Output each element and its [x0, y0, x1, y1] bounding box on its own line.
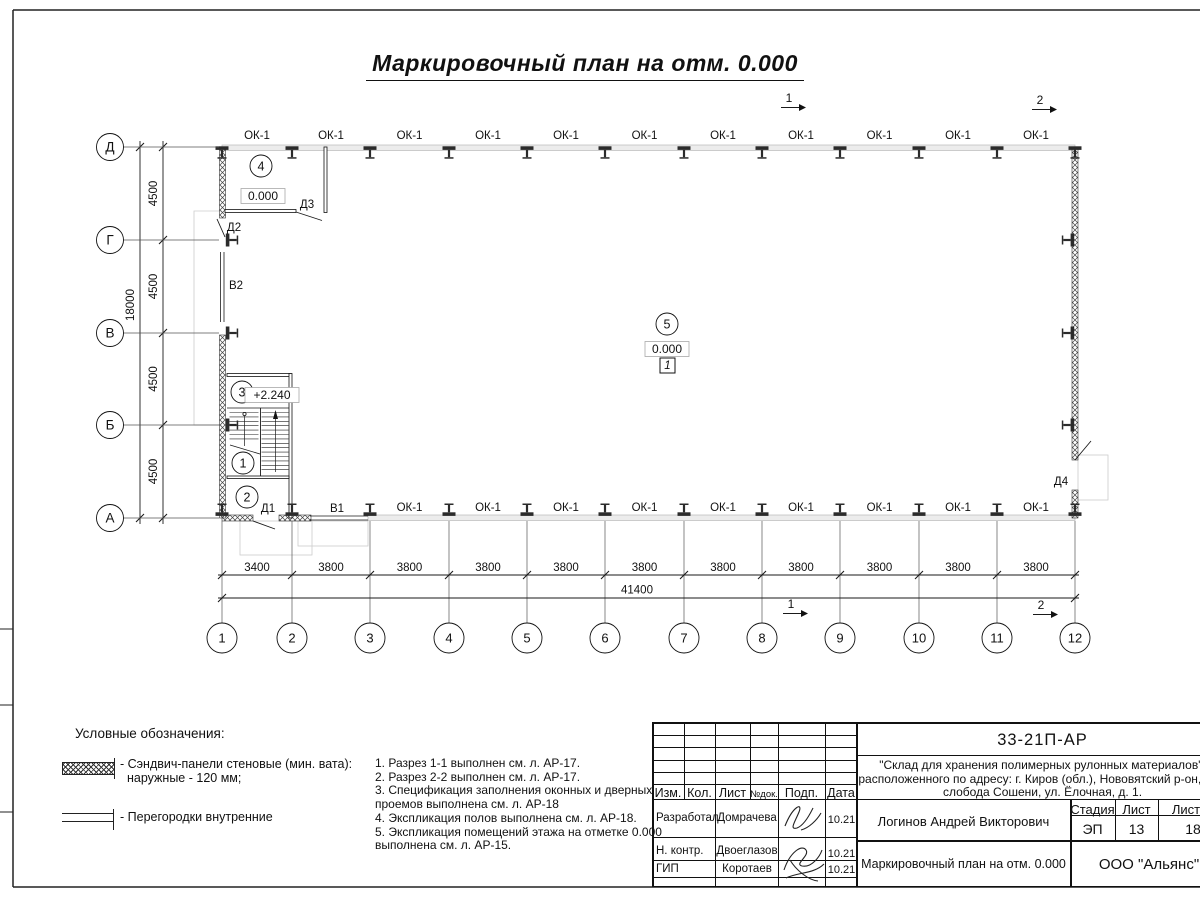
drawing-sheet: { "sheet_title": "Маркировочный план на …: [0, 0, 1200, 900]
column-symbol: [839, 505, 841, 512]
dim-label: 3800: [945, 562, 971, 574]
window-mark-label: ОК-1: [945, 502, 971, 514]
column-symbol: [1063, 239, 1070, 241]
legend-heading: Условные обозначения:: [75, 726, 225, 741]
column-symbol: [448, 150, 450, 157]
column-symbol: [756, 146, 769, 150]
drawing-main-title: Маркировочный план на отм. 0.000: [300, 50, 870, 77]
window-mark-label: ОК-1: [318, 130, 344, 142]
window-mark-label: ОК-1: [1023, 502, 1049, 514]
section-mark-arrow: [1051, 611, 1058, 618]
tb-col-header: №док.: [750, 789, 778, 800]
tb-doc-number: 33-21П-АР: [857, 731, 1200, 750]
notes-list: 1. Разрез 1-1 выполнен см. л. АР-17. 2. …: [375, 757, 671, 853]
elevation-value: 0.000: [248, 189, 278, 203]
tb-role: Н. контр.: [656, 845, 716, 857]
axis-number: 12: [1068, 631, 1082, 646]
note-item: 1. Разрез 1-1 выполнен см. л. АР-17.: [375, 757, 671, 771]
tb-role: ГИП: [656, 863, 716, 875]
column-symbol: [915, 157, 924, 159]
dim-label: 3800: [632, 562, 658, 574]
axis-letter: Д: [105, 140, 114, 155]
column-symbol: [1071, 157, 1080, 159]
column-symbol: [1074, 505, 1076, 512]
axis-number: 11: [990, 631, 1004, 646]
tb-project-desc: расположенного по адресу: г. Киров (обл.…: [857, 772, 1200, 786]
tb-date: 10.21: [826, 814, 857, 826]
column-symbol: [226, 327, 230, 340]
axis-number: 1: [218, 631, 225, 646]
legend-item-label: наружные - 120 мм;: [127, 771, 241, 785]
stair-arrow: [273, 410, 278, 419]
porch-outline: [298, 521, 368, 546]
column-symbol: [1062, 329, 1064, 338]
tb-approved-by: Логинов Андрей Викторович: [857, 814, 1070, 829]
dim-label: 3800: [867, 562, 893, 574]
door-mark-label: Д4: [1054, 476, 1069, 488]
signature: [779, 800, 825, 836]
window-mark-label: ОК-1: [1023, 130, 1049, 142]
section-mark-label: 1: [786, 91, 793, 105]
axis-number: 10: [912, 631, 926, 646]
column-symbol: [526, 505, 528, 512]
door-swing: [296, 212, 322, 221]
column-symbol: [237, 329, 239, 338]
column-symbol: [221, 150, 223, 157]
column-symbol: [1071, 419, 1075, 432]
legend-item-label: - Сэндвич-панели стеновые (мин. вата):: [120, 757, 352, 771]
window-band-top: [222, 145, 1075, 151]
window-mark-label: ОК-1: [632, 130, 658, 142]
axis-number: 4: [445, 631, 452, 646]
dim-label: 3800: [553, 562, 579, 574]
tb-stage-label: Стадия: [1070, 802, 1115, 817]
tb-project-desc: "Склад для хранения полимерных рулонных …: [857, 758, 1200, 772]
door-mark-label: В1: [330, 503, 344, 515]
column-symbol: [366, 504, 375, 506]
column-symbol: [599, 146, 612, 150]
room-number: 1: [240, 456, 247, 470]
dim-label: 3800: [1023, 562, 1049, 574]
tb-sheet-value: 13: [1115, 821, 1158, 837]
partition: [225, 210, 296, 213]
tb-name: Двоеглазов: [716, 845, 778, 857]
column-symbol: [291, 505, 293, 512]
column-symbol: [758, 157, 767, 159]
door-mark-label: Д3: [300, 199, 314, 211]
dim-label: 3400: [244, 562, 270, 574]
dim-label: 41400: [621, 585, 653, 597]
partition: [227, 374, 291, 377]
column-symbol: [996, 505, 998, 512]
column-symbol: [996, 150, 998, 157]
elevation-value: +2.240: [253, 388, 290, 402]
column-symbol: [237, 236, 239, 245]
legend-item-label: - Перегородки внутренние: [120, 810, 273, 824]
tb-col-header: Изм.: [652, 786, 684, 800]
column-symbol: [1063, 332, 1070, 334]
axis-letter: Г: [106, 233, 114, 248]
column-symbol: [369, 150, 371, 157]
door-swing: [217, 219, 225, 237]
column-symbol: [601, 157, 610, 159]
door-mark-label: Д2: [227, 222, 241, 234]
column-symbol: [756, 512, 769, 516]
column-symbol: [678, 146, 691, 150]
axis-letter: Б: [106, 418, 115, 433]
tb-sheet-label: Лист: [1115, 802, 1158, 817]
dim-label: 4500: [148, 366, 160, 392]
window-band-bottom: [368, 515, 1075, 521]
column-symbol: [836, 157, 845, 159]
tb-col-header: Кол.: [684, 786, 715, 800]
column-symbol: [364, 146, 377, 150]
axis-number: 3: [366, 631, 373, 646]
wall-hatch: [1072, 147, 1078, 460]
column-symbol: [683, 505, 685, 512]
column-symbol: [364, 512, 377, 516]
column-symbol: [1063, 424, 1070, 426]
column-symbol: [523, 157, 532, 159]
column-symbol: [286, 512, 299, 516]
window-mark-label: ОК-1: [710, 502, 736, 514]
column-symbol: [288, 157, 297, 159]
column-symbol: [604, 505, 606, 512]
column-symbol: [918, 505, 920, 512]
column-symbol: [216, 512, 229, 516]
column-symbol: [991, 146, 1004, 150]
note-item: 5. Экспликация помещений этажа на отметк…: [375, 826, 671, 853]
column-symbol: [758, 504, 767, 506]
column-symbol: [369, 505, 371, 512]
note-item: 4. Экспликация полов выполнена см. л. АР…: [375, 812, 671, 826]
column-symbol: [218, 504, 227, 506]
axis-number: 7: [680, 631, 687, 646]
column-symbol: [229, 332, 236, 334]
axis-number: 2: [288, 631, 295, 646]
column-symbol: [288, 504, 297, 506]
section-mark-label: 1: [788, 597, 795, 611]
tb-name: Коротаев: [716, 863, 778, 875]
column-symbol: [1062, 421, 1064, 430]
column-symbol: [993, 504, 1002, 506]
dim-label: 4500: [148, 274, 160, 300]
room-number: 4: [258, 159, 265, 173]
tb-col-header: Дата: [825, 786, 857, 800]
column-symbol: [521, 146, 534, 150]
column-symbol: [918, 150, 920, 157]
column-symbol: [678, 512, 691, 516]
section-mark-arrow: [1050, 106, 1057, 113]
column-symbol: [1074, 150, 1076, 157]
column-symbol: [839, 150, 841, 157]
partition: [227, 476, 289, 479]
dim-label: 3800: [788, 562, 814, 574]
door-swing: [253, 521, 275, 529]
column-symbol: [523, 504, 532, 506]
column-symbol: [291, 150, 293, 157]
sandwich-panel-symbol: [62, 762, 115, 775]
axis-number: 9: [836, 631, 843, 646]
wall-hatch: [220, 335, 226, 518]
column-symbol: [761, 505, 763, 512]
dim-label: 3800: [475, 562, 501, 574]
elevation-value: 0.000: [652, 342, 682, 356]
column-symbol: [1069, 512, 1082, 516]
window-mark-label: ОК-1: [867, 502, 893, 514]
window-mark-label: ОК-1: [397, 130, 423, 142]
column-symbol: [226, 419, 230, 432]
porch-outline: [1078, 455, 1108, 500]
column-symbol: [680, 504, 689, 506]
room-number: 3: [239, 385, 246, 399]
axis-number: 5: [523, 631, 530, 646]
floor-type-number: 1: [664, 360, 670, 372]
window-mark-label: ОК-1: [788, 130, 814, 142]
tb-name: Домрачева: [716, 812, 778, 824]
window-mark-label: ОК-1: [710, 130, 736, 142]
section-mark-label: 2: [1038, 598, 1045, 612]
tb-company: ООО "Альянс": [1070, 856, 1200, 873]
axis-letter: В: [105, 326, 114, 341]
column-symbol: [1071, 504, 1080, 506]
column-symbol: [226, 234, 230, 247]
axis-letter: А: [105, 511, 114, 526]
tb-date: 10.21: [826, 864, 857, 876]
column-symbol: [221, 505, 223, 512]
dim-label: 4500: [148, 459, 160, 485]
column-symbol: [445, 157, 454, 159]
tb-drawing-title: Маркировочный план на отм. 0.000: [857, 857, 1070, 871]
column-symbol: [445, 504, 454, 506]
column-symbol: [286, 146, 299, 150]
window-mark-label: ОК-1: [553, 502, 579, 514]
tb-project-desc: слобода Сошени, ул. Ёлочная, д. 1.: [857, 785, 1200, 799]
column-symbol: [683, 150, 685, 157]
note-item: 2. Разрез 2-2 выполнен см. л. АР-17.: [375, 771, 671, 785]
room-number: 2: [244, 490, 251, 504]
window-mark-label: ОК-1: [867, 130, 893, 142]
column-symbol: [834, 512, 847, 516]
column-symbol: [761, 150, 763, 157]
column-symbol: [680, 157, 689, 159]
column-symbol: [526, 150, 528, 157]
window-mark-label: ОК-1: [553, 130, 579, 142]
column-symbol: [604, 150, 606, 157]
wall-hatch: [279, 515, 311, 521]
tb-role: Разработал: [656, 812, 716, 824]
column-symbol: [237, 421, 239, 430]
column-symbol: [366, 157, 375, 159]
column-symbol: [1062, 236, 1064, 245]
column-symbol: [599, 512, 612, 516]
note-item: 3. Спецификация заполнения оконных и две…: [375, 784, 671, 811]
window-mark-label: ОК-1: [397, 502, 423, 514]
axis-number: 8: [758, 631, 765, 646]
column-symbol: [443, 512, 456, 516]
column-symbol: [913, 146, 926, 150]
dim-label: 4500: [148, 181, 160, 207]
column-symbol: [1071, 234, 1075, 247]
window-mark-label: ОК-1: [788, 502, 814, 514]
tb-col-header: Подп.: [778, 786, 825, 800]
window-mark-label: ОК-1: [945, 130, 971, 142]
section-mark-arrow: [799, 104, 806, 111]
column-symbol: [1069, 146, 1082, 150]
tb-sheets-value: 18: [1158, 821, 1200, 837]
column-symbol: [1071, 327, 1075, 340]
window-mark-label: ОК-1: [244, 130, 270, 142]
partition: [324, 147, 327, 213]
column-symbol: [913, 512, 926, 516]
porch-outline: [240, 521, 312, 555]
column-symbol: [521, 512, 534, 516]
door-mark-label: В2: [229, 280, 243, 292]
column-symbol: [448, 505, 450, 512]
interior-partition-symbol: [62, 813, 113, 822]
window-mark-label: ОК-1: [475, 130, 501, 142]
wall-hatch: [222, 515, 253, 521]
tb-col-header: Лист: [715, 786, 750, 800]
canopy-outline: [194, 211, 222, 425]
column-symbol: [834, 146, 847, 150]
dim-label: 3800: [397, 562, 423, 574]
column-symbol: [836, 504, 845, 506]
dim-label: 3800: [710, 562, 736, 574]
axis-number: 6: [601, 631, 608, 646]
section-mark-arrow: [801, 610, 808, 617]
window-mark-label: ОК-1: [475, 502, 501, 514]
column-symbol: [991, 512, 1004, 516]
column-symbol: [218, 157, 227, 159]
dim-label: 3800: [318, 562, 344, 574]
stair-path-start: [243, 412, 246, 415]
column-symbol: [443, 146, 456, 150]
column-symbol: [229, 424, 236, 426]
column-symbol: [993, 157, 1002, 159]
section-mark-label: 2: [1037, 93, 1044, 107]
room-number: 5: [664, 317, 671, 331]
column-symbol: [601, 504, 610, 506]
column-symbol: [915, 504, 924, 506]
tb-sheets-label: Листов: [1158, 802, 1200, 817]
column-symbol: [229, 239, 236, 241]
tb-stage-value: ЭП: [1070, 821, 1115, 837]
signature: [780, 840, 826, 884]
dim-label: 18000: [125, 289, 137, 321]
door-mark-label: Д1: [261, 503, 275, 515]
tb-date: 10.21: [826, 848, 857, 860]
window-mark-label: ОК-1: [632, 502, 658, 514]
